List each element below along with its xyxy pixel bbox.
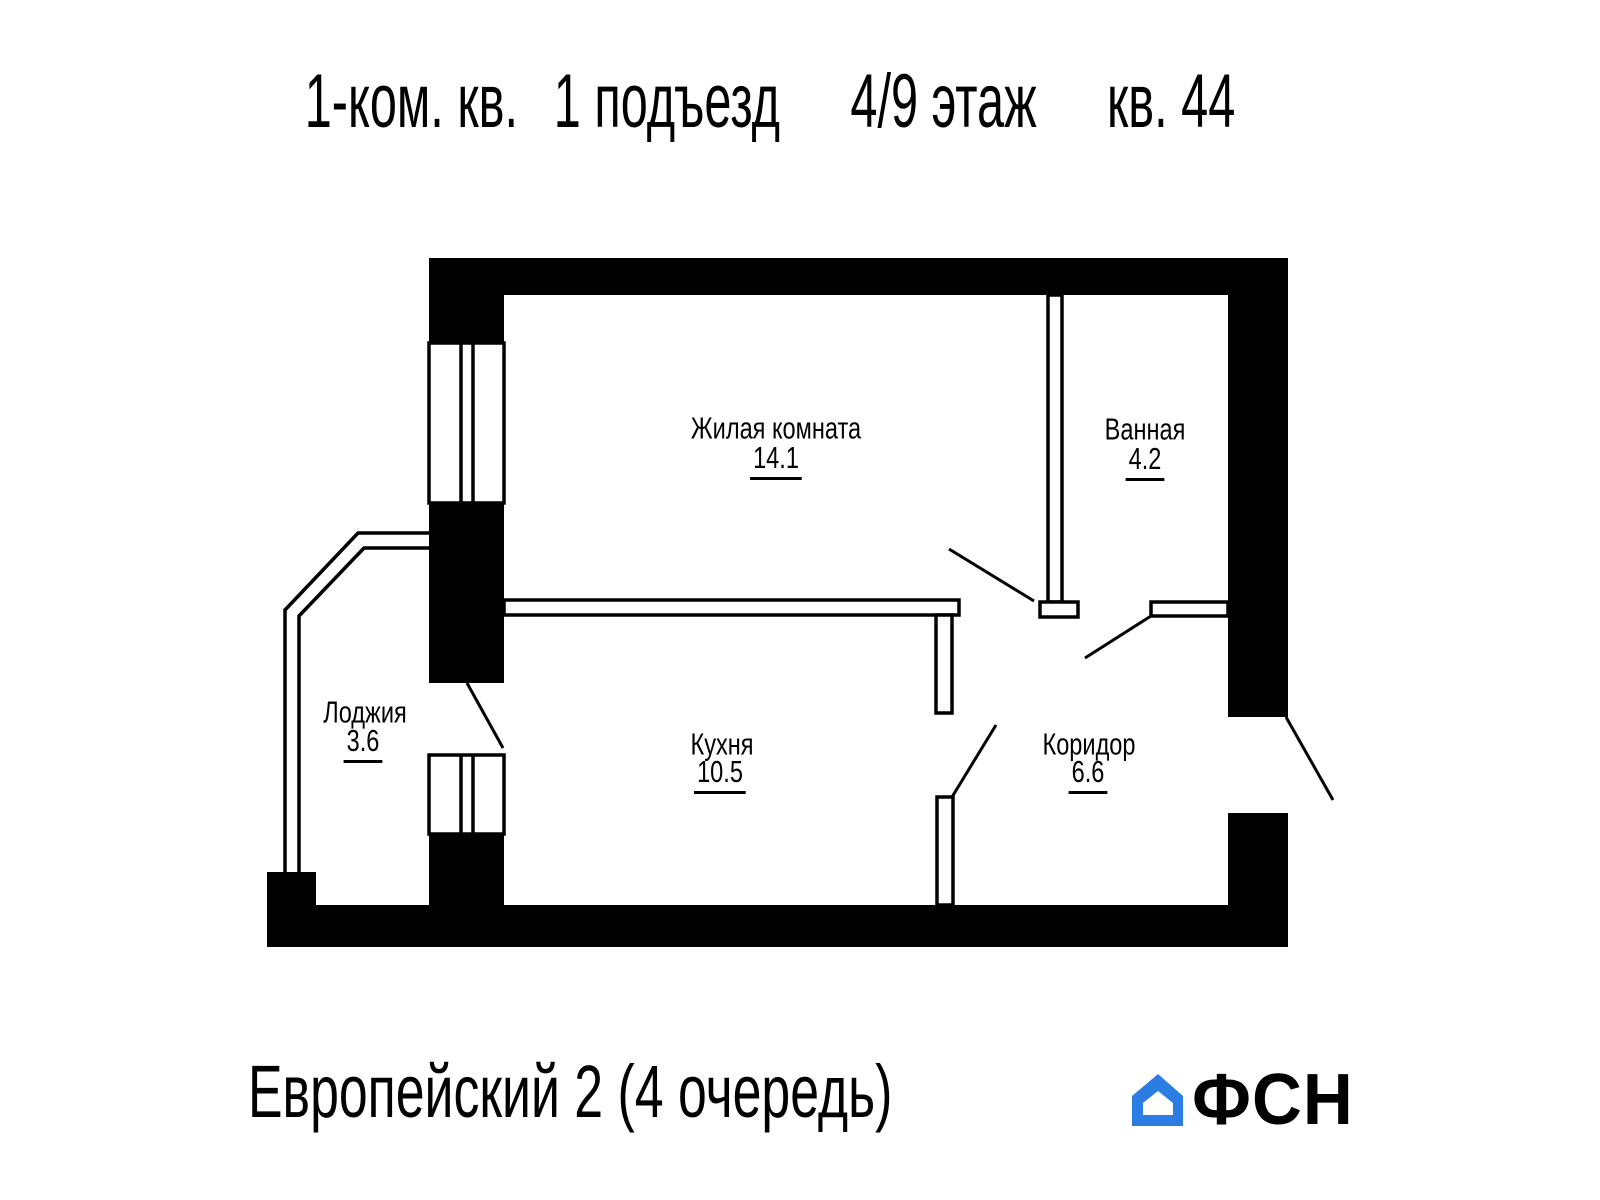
partition-walls: [504, 295, 1228, 905]
top-wall: [429, 258, 1288, 295]
door-swings: [467, 549, 1333, 800]
bathroom-partition-foot: [1040, 602, 1078, 617]
bottom-wall: [267, 905, 1288, 947]
left-wall-mid-segment: [429, 503, 504, 683]
project-name: Европейский 2 (4 очередь): [248, 1055, 892, 1129]
room-area-corridor: 6.6: [1069, 756, 1108, 794]
room-area-value-corridor: 6.6: [1069, 756, 1108, 794]
bathroom-partition: [1048, 295, 1062, 602]
bathroom-door-swing: [1085, 616, 1151, 658]
floorplan-page: 1-ком. кв. 1 подъезд 4/9 этаж кв. 44: [0, 0, 1600, 1200]
floor-plan-drawing: [0, 0, 1600, 1200]
kitchen-partition-horizontal: [504, 600, 959, 615]
room-area-loggia: 3.6: [344, 725, 383, 763]
logo-text: ФСН: [1192, 1064, 1354, 1136]
living-room-door-swing: [949, 549, 1034, 601]
kitchen-partition-vertical-upper: [936, 615, 952, 713]
left-wall-top-segment: [429, 295, 504, 343]
balcony-door-swing: [467, 683, 503, 748]
room-area-value-loggia: 3.6: [344, 725, 383, 763]
living-room-window: [429, 343, 504, 503]
kitchen-door-swing: [952, 725, 996, 797]
room-area-kitchen: 10.5: [694, 756, 746, 794]
right-wall-upper: [1228, 295, 1288, 717]
bathroom-door-side-wall: [1151, 602, 1228, 616]
room-label-bathroom: Ванная: [1105, 414, 1186, 445]
room-label-living-room: Жилая комната: [691, 413, 861, 444]
loggia-corner-pier: [267, 872, 316, 905]
room-area-living-room: 14.1: [750, 442, 802, 480]
room-area-value-kitchen: 10.5: [694, 756, 746, 794]
entrance-door-swing: [1286, 717, 1333, 800]
left-wall-bottom-segment: [429, 834, 504, 905]
room-area-value-bathroom: 4.2: [1126, 443, 1165, 481]
kitchen-window: [429, 755, 504, 834]
kitchen-partition-vertical-lower: [937, 797, 953, 905]
fsn-logo house-icon: [1125, 1068, 1191, 1132]
room-area-value-living-room: 14.1: [750, 442, 802, 480]
room-area-bathroom: 4.2: [1126, 443, 1165, 481]
